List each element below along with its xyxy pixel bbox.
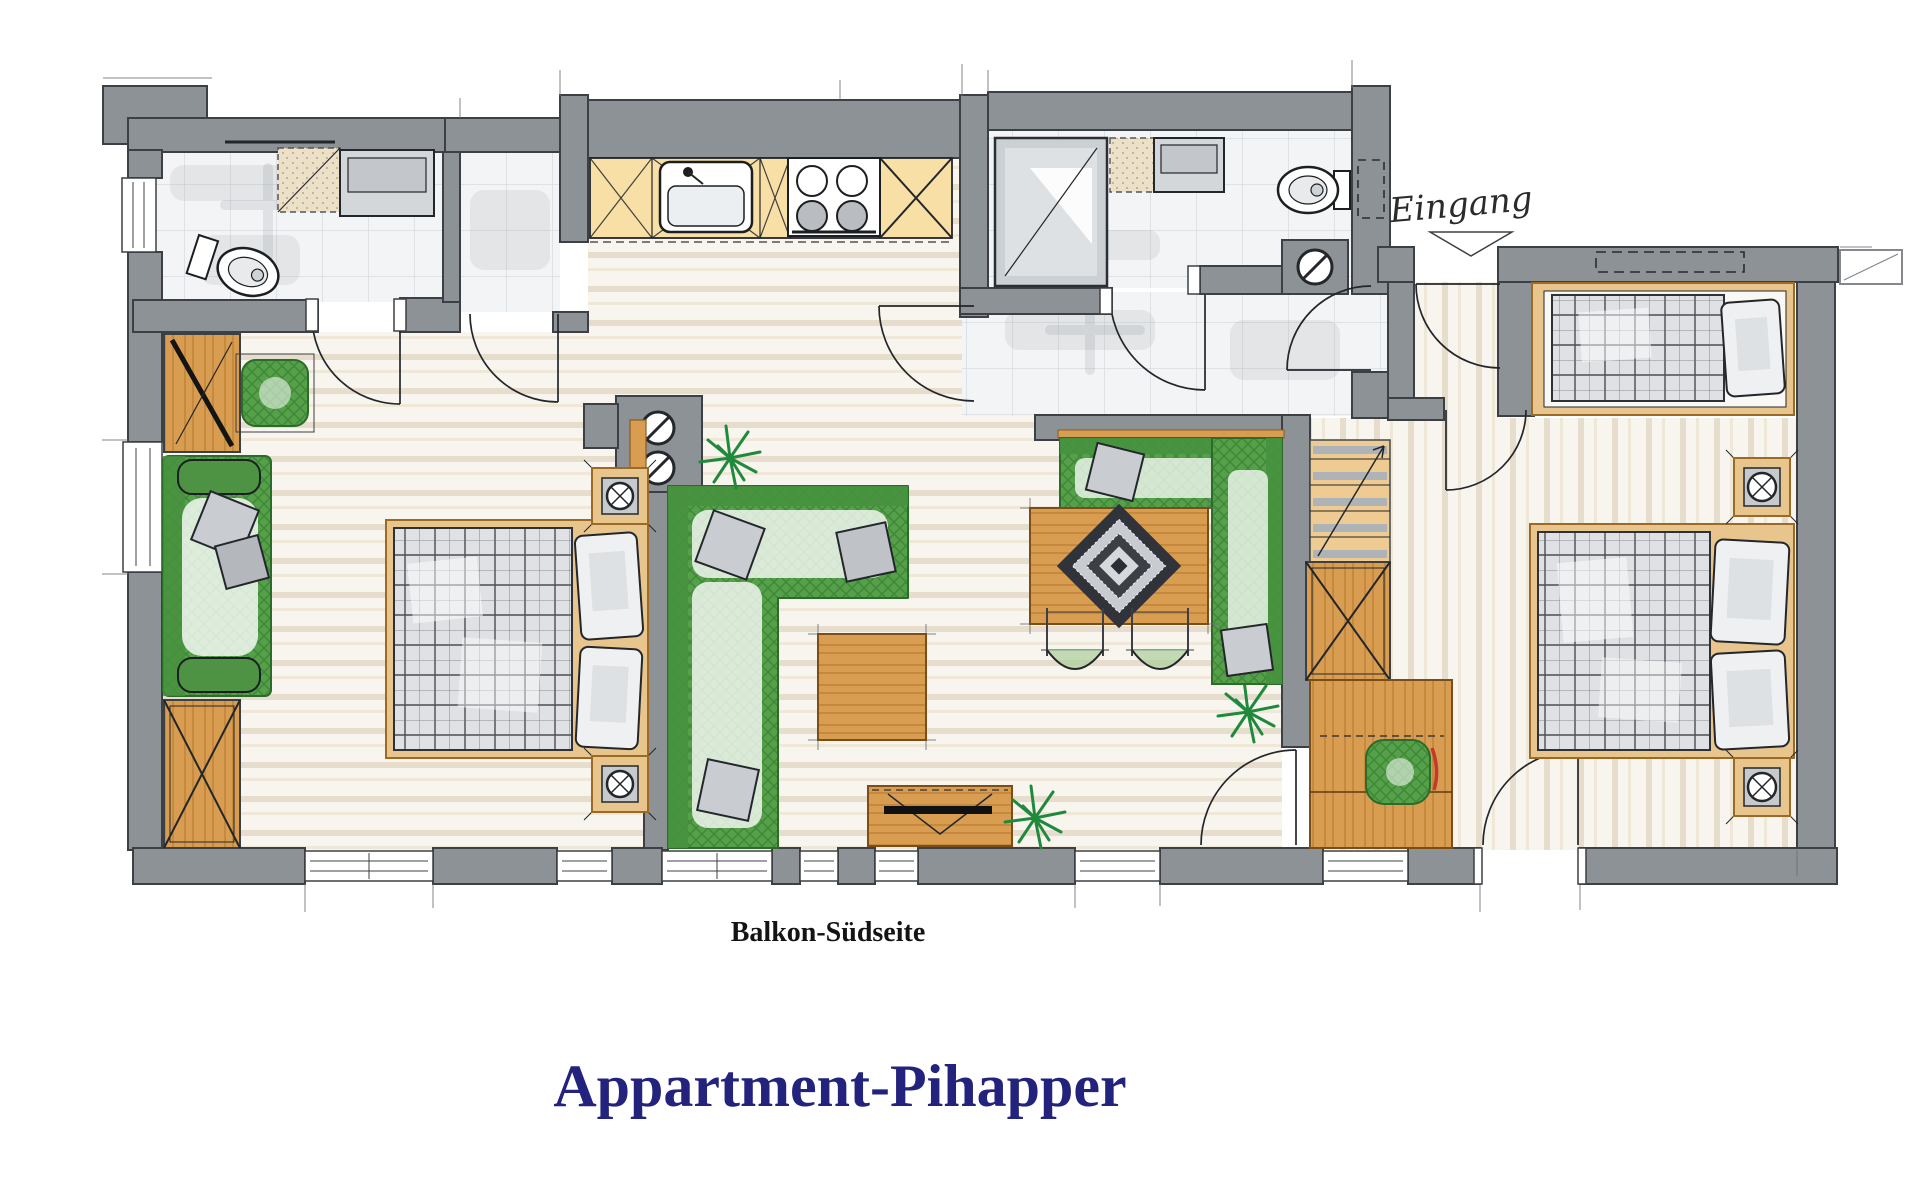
floor-plan: Eingang Balkon-Südseite Appartment-Pihap… xyxy=(0,0,1920,1195)
pillow-icon xyxy=(575,646,642,749)
wardrobe-icon xyxy=(164,334,240,452)
pillow-icon xyxy=(1711,650,1790,750)
wardrobe-icon xyxy=(1306,562,1390,680)
toilet-icon xyxy=(1278,167,1350,213)
pillow-icon xyxy=(1721,299,1785,397)
balcony-label: Balkon-Südseite xyxy=(731,917,926,948)
sofa-icon xyxy=(163,456,271,696)
window-icon xyxy=(875,851,918,881)
nightstand-lamp-icon xyxy=(1726,750,1798,824)
pillow-icon xyxy=(1221,624,1273,676)
nightstand-lamp-icon xyxy=(1726,450,1798,524)
window-icon xyxy=(305,851,433,881)
pillow-icon xyxy=(574,532,643,640)
bench-back-edge xyxy=(1058,430,1284,438)
pillow-icon xyxy=(836,522,895,581)
bedroom-right xyxy=(1530,252,1798,824)
column-icon xyxy=(1298,250,1332,284)
dining-table-icon xyxy=(1020,498,1220,634)
kitchen-counter xyxy=(590,158,952,238)
stairs-icon xyxy=(1310,440,1390,562)
window-icon xyxy=(1323,851,1408,881)
desk-icon xyxy=(1310,680,1452,848)
window-icon xyxy=(123,442,162,572)
tv-sideboard-icon xyxy=(868,786,1012,846)
double-bed-icon xyxy=(1530,524,1794,758)
kitchen xyxy=(590,158,952,242)
nightstand-lamp-icon xyxy=(584,460,656,532)
window-icon xyxy=(662,851,772,881)
armchair-icon xyxy=(236,354,314,432)
sink-icon xyxy=(660,162,752,232)
washbasin-icon xyxy=(1154,138,1224,192)
shelf-speckle xyxy=(1110,138,1154,192)
chair-icon xyxy=(1366,740,1430,804)
plan-title: Appartment-Pihapper xyxy=(553,1053,1126,1119)
coffee-table-icon xyxy=(808,624,936,750)
pillow-icon xyxy=(1710,539,1789,645)
double-bed-icon xyxy=(386,520,648,758)
shower-icon xyxy=(995,138,1107,286)
entrance-label: Eingang xyxy=(1387,179,1534,231)
shower-icon xyxy=(278,148,340,212)
floor-plan-page: Eingang Balkon-Südseite Appartment-Pihap… xyxy=(0,0,1920,1195)
washbasin-icon xyxy=(340,150,434,216)
stove-burners-icon xyxy=(788,158,880,236)
wardrobe-icon xyxy=(164,700,240,848)
single-bed-icon xyxy=(1532,283,1794,415)
pillow-icon xyxy=(697,759,759,821)
window-icon xyxy=(800,851,838,881)
window-icon xyxy=(557,851,612,881)
window-icon xyxy=(122,178,156,252)
nightstand-lamp-icon xyxy=(584,748,656,820)
window-icon xyxy=(1075,851,1160,881)
pillow-icon xyxy=(1086,443,1144,501)
